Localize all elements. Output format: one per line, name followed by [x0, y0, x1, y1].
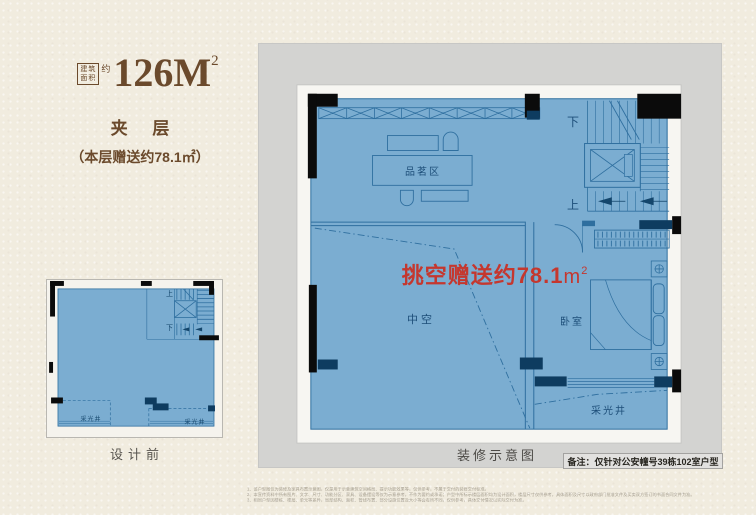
bonus-highlight-text: 挑空赠送约78.1 [402, 263, 564, 288]
note-badge: 备注：仅针对公安幢号39栋102室户型 [563, 453, 723, 469]
floor-plan-sheet: 建筑 面积 约 126M 2 夹 层 （本层赠送约78.1㎡） [0, 0, 756, 515]
small-down-label: 下 [166, 323, 173, 333]
room-label-void: 中空 [393, 311, 449, 327]
area-box-line1: 建筑 [78, 65, 98, 74]
bonus-note: （本层赠送约78.1㎡） [16, 147, 264, 167]
room-label-tea-area: 品茗区 [373, 163, 473, 178]
room-label-bedroom: 卧室 [545, 313, 599, 328]
area-unit-box: 建筑 面积 [77, 63, 99, 85]
floor-label: 夹 层 [38, 114, 242, 139]
disclaimer-line: 3、相同户型因楼栋、楼层、单元等差异，局部结构、面积、管线布置、部分设施位置及大… [247, 498, 597, 504]
area-box-line2: 面积 [78, 74, 98, 83]
stairs-up-label: 上 [567, 196, 589, 213]
bonus-highlight: 挑空赠送约78.1m2 [375, 258, 615, 290]
area-approx-char: 约 [101, 62, 110, 75]
disclaimer: 1、该户型图仅为装修及家具布置示意图，仅是用于示意建筑空间格局、提示功能效果等，… [247, 487, 747, 511]
main-plan-panel: 品茗区 下 上 中空 卧室 采光井 挑空赠送约78.1m2 [258, 43, 722, 468]
small-up-label: 上 [166, 289, 173, 299]
small-plan-caption: 设计前 [46, 444, 223, 463]
floor-area-number: 126M [113, 50, 211, 96]
bonus-highlight-unit: m [564, 266, 582, 288]
elevator [585, 144, 641, 188]
stairs-down-label: 下 [567, 113, 589, 130]
area-title: 建筑 面积 约 126M 2 [58, 50, 238, 96]
main-plan-drawing [259, 44, 721, 467]
small-lightwell-left-label: 采光井 [65, 414, 117, 423]
small-lightwell-right-label: 采光井 [169, 417, 221, 426]
room-label-light-well: 采光井 [575, 402, 643, 417]
small-plan: 上 下 采光井 采光井 [46, 279, 223, 438]
small-elevator [174, 301, 196, 318]
main-plan-caption: 装修示意图 [420, 445, 574, 464]
floor-area-sup: 2 [211, 53, 219, 70]
bonus-highlight-sup: 2 [581, 265, 588, 277]
